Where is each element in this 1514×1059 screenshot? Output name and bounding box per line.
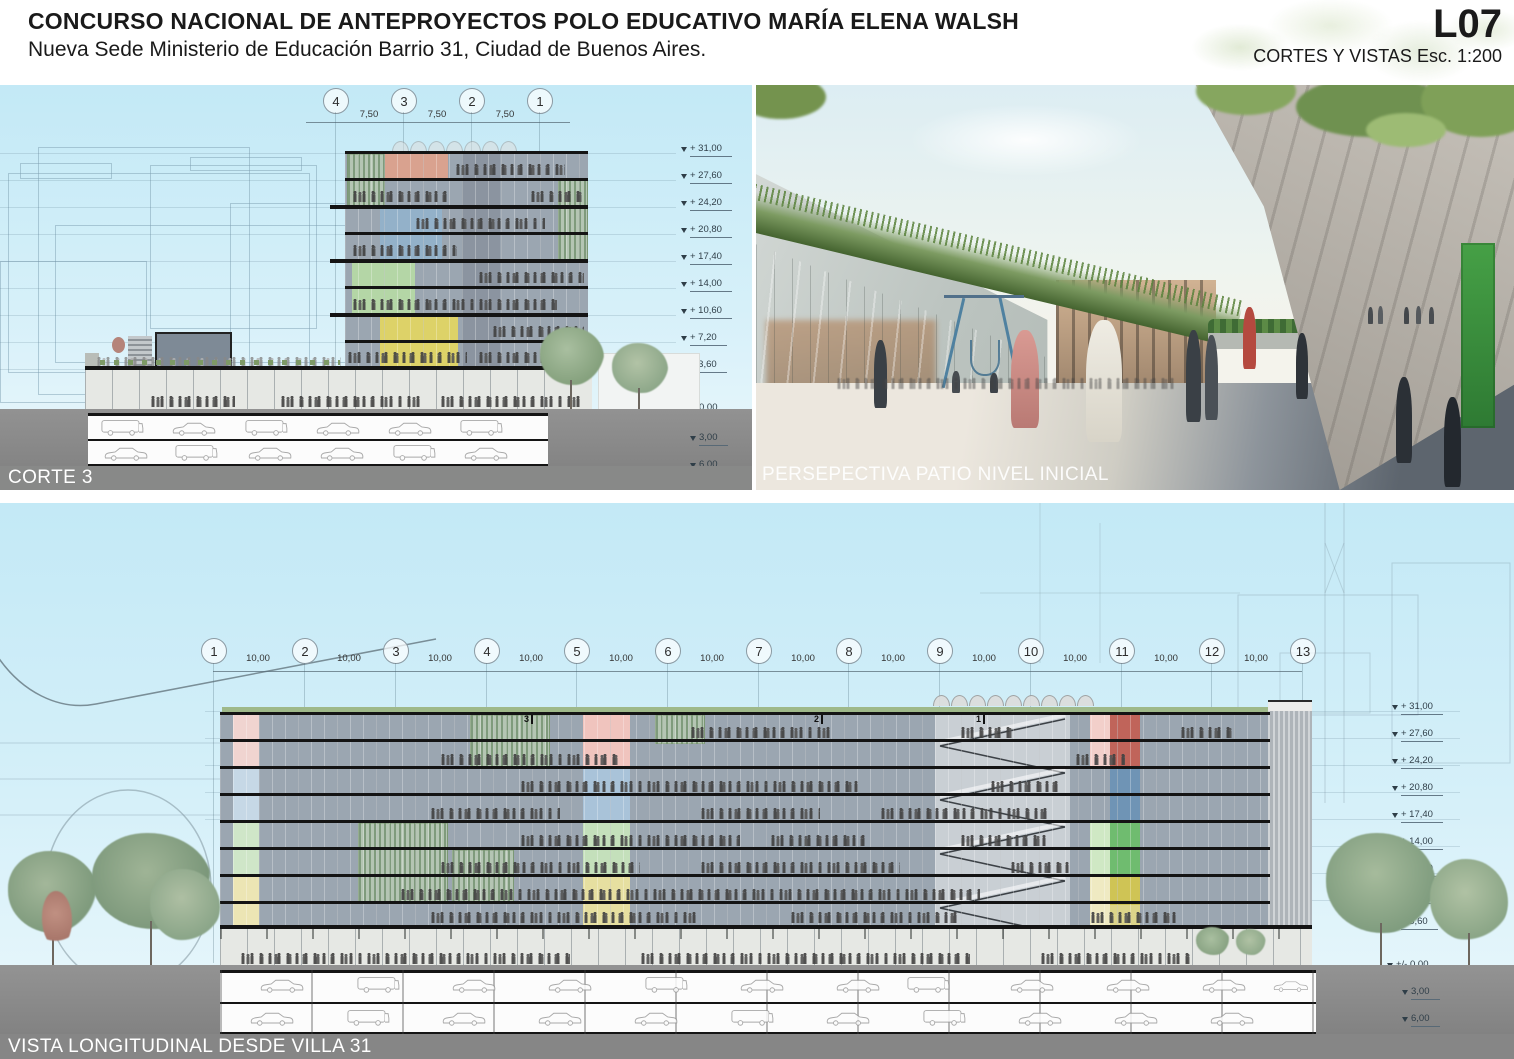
floor-slab — [220, 766, 1270, 769]
people-row — [960, 726, 1015, 738]
level-marker: + 7,20 — [681, 332, 727, 346]
grid-bubble: 8 — [836, 638, 862, 664]
car-icon — [352, 976, 404, 993]
roof-slab — [345, 151, 588, 154]
green-wall — [1461, 243, 1495, 428]
car-icon — [822, 1011, 872, 1026]
floor-slab — [330, 205, 588, 209]
dim-label: 10,00 — [791, 653, 815, 664]
grid-bubble: 6 — [655, 638, 681, 664]
tree-trunk — [638, 388, 640, 409]
section-marker: 3 — [524, 715, 533, 724]
people-row — [455, 163, 565, 175]
sheet-code: L07 — [1433, 2, 1502, 47]
dim-label: 10,00 — [881, 653, 905, 664]
people-row — [352, 190, 452, 202]
grid-bubble: 3 — [383, 638, 409, 664]
basement-slab — [88, 413, 548, 416]
people-row — [530, 190, 582, 202]
level-marker: + 17,40 — [681, 251, 732, 265]
people-row — [352, 244, 457, 256]
car-icon — [100, 446, 150, 461]
people-row — [1090, 911, 1180, 923]
car-icon — [726, 1009, 778, 1026]
people-row — [690, 726, 830, 738]
bridge-person — [1416, 306, 1421, 324]
person-silhouette — [1396, 377, 1412, 463]
grid-bubble: 2 — [459, 88, 485, 114]
tree-trunk — [570, 380, 572, 409]
car-icon — [384, 421, 434, 436]
corte3-panel: + 31,00 + 27,60 + 24,20 + 20,80 + 17,40 … — [0, 85, 752, 490]
tree — [1430, 859, 1508, 941]
small-tree — [1236, 929, 1266, 955]
grid-bubble: 13 — [1290, 638, 1316, 664]
people-row — [520, 780, 860, 792]
small-tree — [1196, 927, 1230, 955]
car-icon — [1198, 978, 1248, 993]
car-icon — [918, 1009, 970, 1026]
tree-trunk — [150, 921, 152, 965]
car-icon — [1272, 980, 1308, 992]
people-row — [440, 753, 620, 765]
car-icon — [460, 446, 510, 461]
sheet-scale-info: CORTES Y VISTAS Esc. 1:200 — [1253, 46, 1502, 67]
ghost-building-outline — [190, 157, 302, 171]
people-row — [347, 351, 467, 363]
grid-bubble: 4 — [323, 88, 349, 114]
grid-bubble: 2 — [292, 638, 318, 664]
grid-bubble: 11 — [1109, 638, 1135, 664]
grid-bubble: 10 — [1018, 638, 1044, 664]
level-marker: + 31,00 — [1392, 701, 1443, 715]
vista-label: VISTA LONGITUDINAL DESDE VILLA 31 — [8, 1036, 372, 1058]
floor-slab — [345, 286, 588, 289]
floor-slab — [330, 313, 588, 317]
floor-slab — [345, 178, 588, 181]
dim-label: 10,00 — [972, 653, 996, 664]
bridge-person — [1378, 306, 1383, 324]
grid-bubble: 4 — [474, 638, 500, 664]
people-row — [1075, 753, 1125, 765]
dimension-line — [306, 122, 570, 123]
corte3-label-band: CORTE 3 — [0, 466, 752, 490]
people-row — [430, 911, 700, 923]
tree — [150, 869, 220, 941]
people-row — [415, 217, 545, 229]
car-icon — [388, 444, 440, 461]
person-silhouette — [1296, 333, 1308, 399]
car-icon — [1110, 1011, 1160, 1026]
people-row — [520, 834, 740, 846]
people-row — [400, 888, 980, 900]
people-row — [430, 807, 560, 819]
floor-slab — [220, 793, 1270, 796]
roof-parapet — [220, 712, 1270, 715]
car-icon — [1102, 978, 1152, 993]
level-marker: 6,00 — [1402, 1013, 1440, 1027]
bridge-person — [1404, 307, 1409, 324]
dim-label: 10,00 — [700, 653, 724, 664]
floor-slab — [220, 901, 1270, 904]
grid-bubble: 9 — [927, 638, 953, 664]
floor-slab — [220, 739, 1270, 742]
dim-label: 7,50 — [496, 109, 515, 120]
corte3-label: CORTE 3 — [8, 467, 93, 489]
level-marker: + 10,60 — [681, 305, 732, 319]
person-silhouette — [1205, 335, 1218, 420]
ground-floor-columns — [220, 929, 1312, 939]
level-marker: 3,00 — [1402, 986, 1440, 1000]
car-icon — [256, 978, 306, 993]
tree-trunk — [1468, 933, 1470, 965]
foliage — [1366, 113, 1446, 147]
people-row — [790, 911, 960, 923]
ground-people — [240, 952, 570, 964]
dim-label: 7,50 — [360, 109, 379, 120]
vista-panel: + 31,00 + 27,60 + 24,20 + 20,80 + 17,40 … — [0, 503, 1514, 1059]
level-marker: + 20,80 — [681, 224, 732, 238]
background-crowd — [836, 377, 1176, 389]
swing-seat — [970, 340, 1000, 376]
car-icon — [736, 978, 786, 993]
car-icon — [1014, 1011, 1064, 1026]
car-icon — [902, 976, 954, 993]
car-icon — [312, 421, 362, 436]
ground-people — [640, 952, 970, 964]
level-marker: + 20,80 — [1392, 782, 1443, 796]
people-row — [440, 861, 640, 873]
foliage — [756, 85, 826, 119]
tree — [612, 343, 668, 393]
grid-bubble: 3 — [391, 88, 417, 114]
car-icon — [170, 444, 222, 461]
car-icon — [544, 978, 594, 993]
people-row — [700, 807, 820, 819]
dim-label: 10,00 — [1063, 653, 1087, 664]
people-row — [352, 298, 557, 310]
section-marker: 1 — [976, 715, 985, 724]
bridge-person — [1429, 307, 1434, 324]
tree-trunk — [1380, 923, 1382, 965]
people-row — [1180, 726, 1235, 738]
car-icon — [1006, 978, 1056, 993]
grid-bubble: 5 — [564, 638, 590, 664]
level-marker: + 17,40 — [1392, 809, 1443, 823]
person-silhouette — [874, 340, 887, 408]
level-marker: + 27,60 — [1392, 728, 1443, 742]
swing-frame-bar — [944, 295, 1024, 298]
bridge-person — [1368, 307, 1373, 324]
car-icon — [96, 419, 148, 436]
floor-slab — [220, 874, 1270, 877]
car-icon — [448, 978, 498, 993]
dim-label: 10,00 — [1244, 653, 1268, 664]
basement-slab — [88, 439, 548, 441]
people-row — [770, 834, 870, 846]
grid-line — [335, 112, 336, 377]
people-row — [478, 271, 584, 283]
car-icon — [1206, 1011, 1256, 1026]
car-icon — [534, 1011, 584, 1026]
tree-red — [42, 891, 72, 947]
grid-bubble: 1 — [201, 638, 227, 664]
people-row — [880, 807, 1050, 819]
atrium-skylight-domes — [933, 695, 1094, 706]
people-row — [990, 780, 1060, 792]
dim-label: 10,00 — [609, 653, 633, 664]
floor-slab — [345, 232, 588, 235]
car-icon — [342, 1009, 394, 1026]
car-icon — [244, 446, 294, 461]
section-marker: 2 — [814, 715, 823, 724]
dim-label: 10,00 — [337, 653, 361, 664]
car-icon — [832, 978, 882, 993]
terrace-shrub-red — [112, 337, 125, 353]
page-title: CONCURSO NACIONAL DE ANTEPROYECTOS POLO … — [28, 8, 1019, 35]
floor-slab — [330, 259, 588, 263]
ground-people — [150, 395, 235, 407]
person-red — [1243, 307, 1256, 369]
grid-bubble: 1 — [527, 88, 553, 114]
car-icon — [316, 446, 366, 461]
dim-label: 10,00 — [246, 653, 270, 664]
person-silhouette — [1186, 330, 1201, 422]
floor-slab — [220, 820, 1270, 823]
ground-people — [280, 395, 420, 407]
people-row — [1010, 861, 1070, 873]
grid-bubble: 7 — [746, 638, 772, 664]
car-icon — [240, 419, 292, 436]
page-subtitle: Nueva Sede Ministerio de Educación Barri… — [28, 38, 706, 62]
car-icon — [438, 1011, 488, 1026]
dim-label: 10,00 — [428, 653, 452, 664]
floor-slab — [220, 847, 1270, 850]
dim-label: 10,00 — [1154, 653, 1178, 664]
dim-label: 10,00 — [519, 653, 543, 664]
level-marker: + 24,20 — [1392, 755, 1443, 769]
grid-bubble: 12 — [1199, 638, 1225, 664]
perspective-label: PERSEPECTIVA PATIO NIVEL INICIAL — [762, 464, 1109, 486]
dim-label: 7,50 — [428, 109, 447, 120]
car-icon — [168, 421, 218, 436]
terrace-planters — [100, 360, 340, 365]
car-icon — [640, 976, 692, 993]
ground-people — [440, 395, 580, 407]
car-icon — [455, 419, 507, 436]
level-marker: + 24,20 — [681, 197, 732, 211]
car-icon — [630, 1011, 680, 1026]
ground-people — [1040, 952, 1190, 964]
perspective-label-band: PERSEPECTIVA PATIO NIVEL INICIAL — [756, 463, 1514, 487]
car-icon — [246, 1011, 296, 1026]
tree — [540, 327, 604, 385]
ghost-building-outline — [20, 163, 112, 179]
level-marker: + 31,00 — [681, 143, 732, 157]
people-row — [960, 834, 1050, 846]
level-marker: + 14,00 — [681, 278, 732, 292]
level-marker: 3,00 — [690, 432, 728, 446]
perspective-panel: PERSEPECTIVA PATIO NIVEL INICIAL — [756, 85, 1514, 490]
vista-label-band: VISTA LONGITUDINAL DESDE VILLA 31 — [0, 1034, 1514, 1059]
presentation-sheet: CONCURSO NACIONAL DE ANTEPROYECTOS POLO … — [0, 0, 1514, 1059]
level-marker: + 27,60 — [681, 170, 732, 184]
people-row — [700, 861, 900, 873]
cloud — [896, 100, 1156, 180]
